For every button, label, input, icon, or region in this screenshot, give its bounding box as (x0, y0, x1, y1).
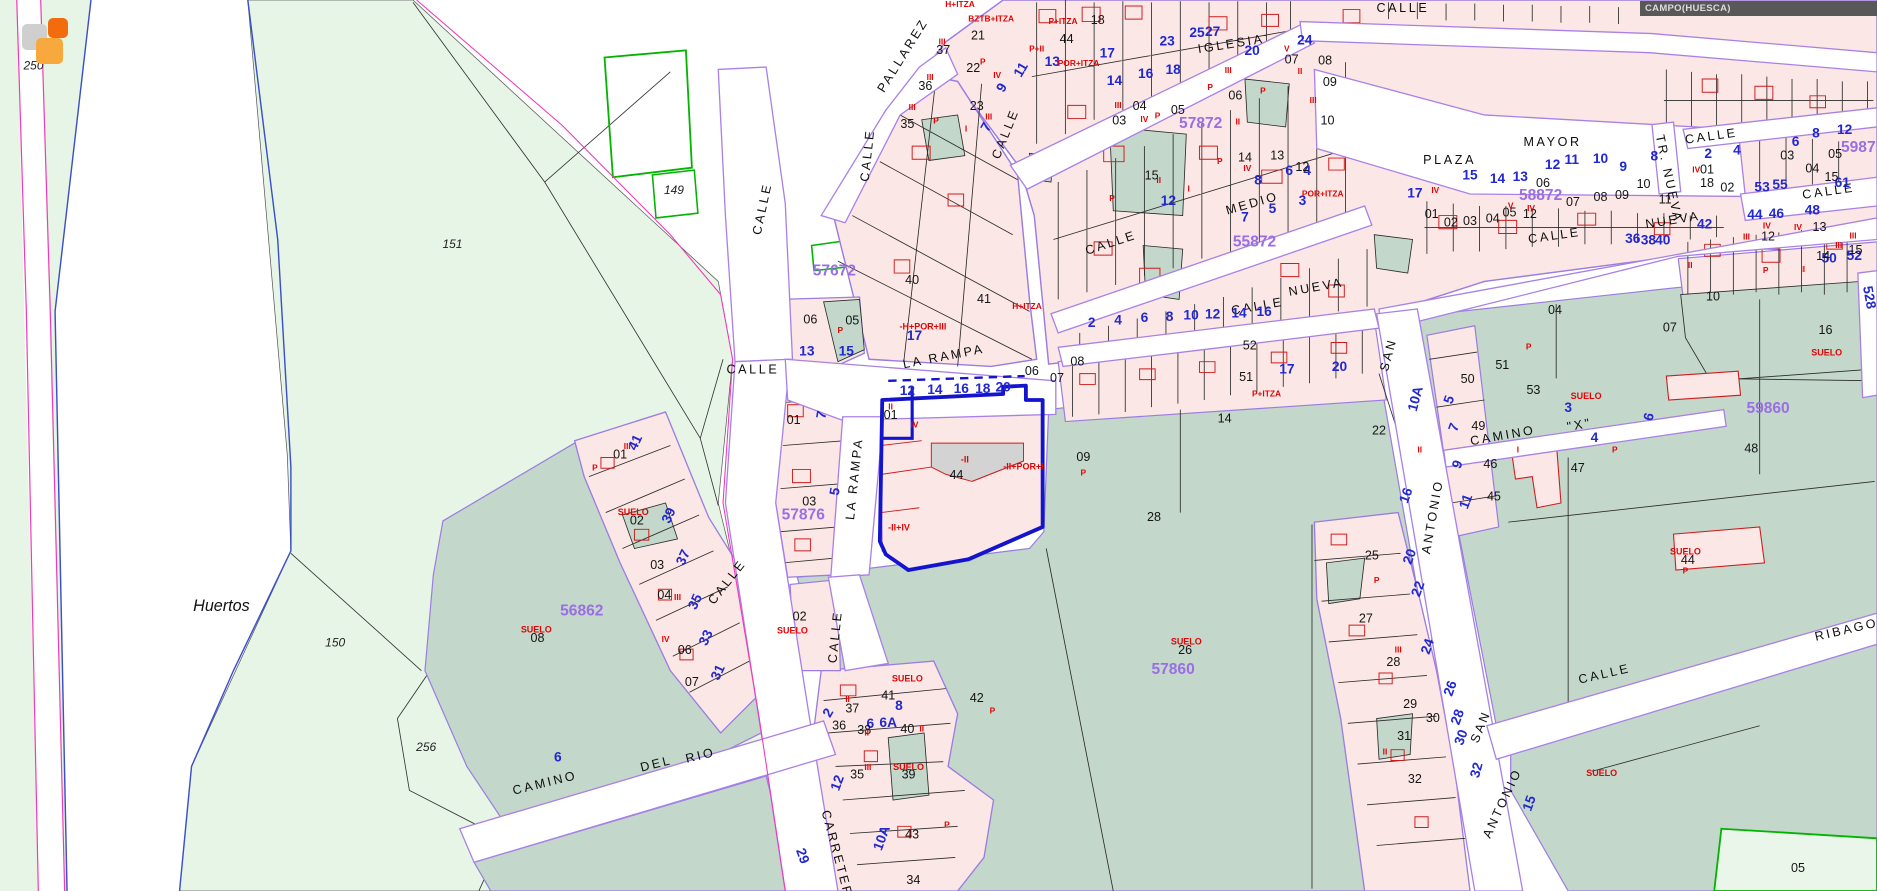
house-number-label: 18 (1165, 62, 1181, 77)
house-number-label: 4 (1114, 313, 1122, 328)
house-number-label: 6 (554, 750, 562, 765)
rural-parcel-label: 256 (415, 740, 436, 754)
parcel-number-label: 13 (1813, 220, 1827, 234)
parcel-number-label: 31 (1397, 729, 1411, 743)
house-number-label: 17 (1279, 362, 1295, 377)
construction-annotation: II (864, 727, 869, 737)
construction-annotation: P (838, 325, 844, 335)
construction-annotation: IV (1527, 203, 1535, 213)
house-number-label: 16 (1138, 66, 1154, 81)
house-number-label: 14 (927, 382, 943, 397)
block-number-label: 57860 (1152, 661, 1196, 678)
construction-annotation: SUELO (521, 624, 552, 634)
tile-orange-icon (48, 18, 68, 38)
parcel-number-label: 40 (900, 722, 914, 736)
house-number-label: 6A (879, 715, 897, 730)
house-number-label: 15 (839, 344, 855, 359)
parcel-number-label: 28 (1147, 510, 1161, 524)
construction-annotation: SUELO (777, 626, 808, 636)
construction-annotation: IV (1243, 163, 1251, 173)
parcel-number-label: 44 (1060, 32, 1074, 46)
parcel-number-label: 10 (1637, 177, 1651, 191)
region-label: CAMPO(HUESCA) (1645, 3, 1731, 14)
parcel-number-label: 03 (802, 494, 816, 508)
house-number-label: 55 (1772, 177, 1788, 192)
tile-amber-icon (36, 38, 63, 64)
construction-annotation: III (927, 72, 934, 82)
construction-annotation: P (1612, 445, 1618, 455)
construction-annotation: II (1298, 66, 1303, 76)
house-number-label: 8 (1254, 172, 1262, 187)
parcel-number-label: 07 (1663, 321, 1677, 335)
construction-annotation: II (919, 724, 924, 734)
parcel-number-label: 02 (1444, 215, 1458, 229)
street-name-label: CALLE (726, 363, 779, 377)
construction-annotation: P (980, 57, 986, 67)
construction-annotation: III (1743, 232, 1750, 242)
house-number-label: 12 (1161, 193, 1177, 208)
parcel-number-label: 45 (1487, 490, 1501, 504)
parcel-number-label: 34 (906, 873, 920, 887)
parcel-number-label: 01 (787, 413, 801, 427)
construction-annotation: V (1284, 43, 1290, 53)
parcel-number-label: 05 (845, 314, 859, 328)
construction-annotation: P (1763, 265, 1769, 275)
construction-annotation: II (1800, 264, 1805, 274)
house-number-label: 20 (1244, 43, 1260, 58)
parcel-number-label: 01 (1425, 207, 1439, 221)
construction-annotation: III (1225, 65, 1232, 75)
construction-annotation: SUELO (1670, 546, 1701, 556)
construction-annotation: P (990, 706, 996, 716)
house-number-label: 42 (1697, 217, 1713, 232)
house-number-label: 8 (1812, 126, 1820, 141)
construction-annotation: II (888, 402, 893, 412)
parcel-number-label: 49 (1471, 419, 1485, 433)
block-number-label: 59871 (1841, 139, 1877, 156)
parcel-number-label: 05 (1171, 103, 1185, 117)
parcel-number-label: 14 (1816, 249, 1830, 263)
parcel-number-label: 51 (1495, 358, 1509, 372)
construction-annotation: BZTB+ITZA (968, 14, 1014, 24)
house-number-label: 17 (1100, 45, 1116, 60)
construction-annotation: III (909, 102, 916, 112)
construction-annotation: P (1526, 342, 1532, 352)
block-number-label: 55872 (1233, 234, 1277, 251)
house-number-label: 20 (1332, 359, 1348, 374)
rural-parcel-label: 150 (325, 636, 345, 650)
parcel-number-label: 29 (1403, 697, 1417, 711)
rural-parcel-label: 149 (664, 183, 684, 197)
construction-annotation: -II+IV (888, 523, 910, 533)
parcel-number-label: 35 (900, 117, 914, 131)
construction-annotation: H+ITZA (1012, 301, 1042, 311)
street-name-label: PLAZA (1423, 153, 1476, 167)
construction-annotation: P (1155, 111, 1161, 121)
parcel-number-label: 43 (905, 827, 919, 841)
parcel-number-label: 06 (1228, 88, 1242, 102)
construction-annotation: IV (1140, 114, 1148, 124)
parcel-number-label: 12 (1761, 230, 1775, 244)
construction-annotation: SUELO (892, 673, 923, 683)
house-number-label: 23 (1159, 34, 1175, 49)
house-number-label: 24 (1297, 32, 1313, 47)
construction-annotation: II (1156, 175, 1161, 185)
parcel-number-label: 52 (1243, 339, 1257, 353)
house-number-label: 14 (1107, 73, 1123, 88)
house-number-label: 10 (1593, 151, 1609, 166)
house-number-label: 12 (1205, 307, 1221, 322)
construction-annotation: III (1115, 100, 1122, 110)
parcel-number-label: 08 (1070, 354, 1084, 368)
parcel-number-label: 07 (685, 675, 699, 689)
parcel-number-label: 04 (1805, 161, 1819, 175)
parcel-number-label: 08 (1318, 54, 1332, 68)
house-number-label: 8 (1166, 309, 1174, 324)
construction-annotation: P (933, 115, 939, 125)
parcel-number-label: 16 (1819, 323, 1833, 337)
construction-annotation: III (674, 592, 681, 602)
construction-annotation: II (845, 694, 850, 704)
house-number-label: 528 (1860, 285, 1877, 311)
area-name-label: Huertos (193, 597, 250, 615)
parcel-number-label: 14 (1218, 412, 1232, 426)
parcel-number-label: 53 (1526, 383, 1540, 397)
construction-annotation: II (1417, 445, 1422, 455)
house-number-label: 25 (1189, 25, 1205, 40)
house-number-label: 44 (1747, 207, 1763, 222)
house-number-label: 38 (1641, 232, 1657, 247)
house-number-label: 16 (954, 381, 970, 396)
block-number-label: 57872 (1179, 115, 1223, 132)
parcel-number-label: 15 (1848, 243, 1862, 257)
parcel-number-label: 41 (881, 688, 895, 702)
parcel-number-label: 44 (949, 468, 963, 482)
house-number-label: 7 (1241, 210, 1249, 225)
parcel-number-label: 35 (850, 767, 864, 781)
house-number-label: 2 (1704, 146, 1712, 161)
house-number-label: 27 (1205, 24, 1221, 39)
construction-annotation: II (1383, 746, 1388, 756)
house-number-label: 36 (1625, 231, 1641, 246)
parcel-number-label: 40 (905, 273, 919, 287)
street-name-label: MAYOR (1523, 135, 1581, 149)
house-number-label: 13 (799, 344, 815, 359)
construction-annotation: I (1188, 184, 1190, 194)
parcel-number-label: 42 (970, 691, 984, 705)
house-number-label: 18 (975, 381, 991, 396)
construction-annotation: II (1688, 260, 1693, 270)
parcel-number-label: 32 (1408, 772, 1422, 786)
construction-annotation: IV (1431, 185, 1439, 195)
construction-annotation: -II (961, 454, 969, 464)
parcel-number-label: 05 (1828, 147, 1842, 161)
parcel-number-label: 21 (971, 29, 985, 43)
parcel-number-label: 04 (1548, 303, 1562, 317)
parcel-number-label: 15 (1825, 170, 1839, 184)
construction-annotation: I (965, 124, 967, 134)
construction-annotation: SUELO (1811, 348, 1842, 358)
house-number-label: 15 (1462, 168, 1478, 183)
construction-annotation: III (985, 112, 992, 122)
construction-annotation: IV (993, 70, 1001, 80)
parcel-number-label: 25 (1365, 548, 1379, 562)
construction-annotation: P (1109, 193, 1115, 203)
house-number-label: 12 (900, 383, 916, 398)
construction-annotation: V (1508, 200, 1514, 210)
construction-annotation: III (1835, 240, 1842, 250)
house-number-label: 4 (1733, 142, 1741, 157)
construction-annotation: IV (1692, 164, 1700, 174)
construction-annotation: POR+ITZA (1302, 188, 1344, 198)
block-number-label: 57672 (813, 262, 857, 279)
parcel-number-label: 36 (832, 718, 846, 732)
green-parcel-outline (605, 50, 692, 177)
parcel-number-label: 04 (657, 588, 671, 602)
house-number-label: 2 (1088, 315, 1096, 330)
house-number-label: 17 (1407, 186, 1423, 201)
construction-annotation: III (624, 441, 631, 451)
parcel-number-label: 03 (1463, 214, 1477, 228)
parcel-number-label: 09 (1615, 188, 1629, 202)
house-number-label: 6 (1141, 310, 1149, 325)
house-number-label: 48 (1805, 202, 1821, 217)
region-indicator: CAMPO(HUESCA) (1640, 1, 1877, 16)
parcel-number-label: 18 (1700, 176, 1714, 190)
parcel-number-label: 03 (650, 558, 664, 572)
parcel-number-label: 07 (1566, 195, 1580, 209)
house-number-label: 6 (1285, 163, 1293, 178)
parcel-number-label: 18 (1091, 13, 1105, 27)
construction-annotation: SUELO (1586, 768, 1617, 778)
construction-annotation: H+ITZA (945, 0, 975, 9)
parcel-number-label: 30 (1426, 711, 1440, 725)
construction-annotation: P+ITZA (1252, 388, 1281, 398)
parcel-number-label: 04 (1133, 99, 1147, 113)
construction-annotation: III (1850, 230, 1857, 240)
parcel-number-label: 01 (1700, 163, 1714, 177)
street-name-label: CALLE (1376, 1, 1429, 15)
construction-annotation: II (1235, 117, 1240, 127)
construction-annotation: SUELO (893, 762, 924, 772)
house-number-label: 53 (1754, 180, 1770, 195)
construction-annotation: P (944, 820, 950, 830)
house-number-label: 5 (1269, 201, 1277, 216)
parcel-number-label: 03 (1112, 114, 1126, 128)
parcel-number-label: 22 (1372, 424, 1386, 438)
parcel-number-label: 09 (1323, 75, 1337, 89)
house-number-label: 14 (1231, 305, 1247, 320)
house-number-label: 12 (1837, 122, 1853, 137)
parcel-number-label: 05 (1791, 861, 1805, 875)
parcel-number-label: 02 (793, 609, 807, 623)
house-number-label: 4 (1591, 430, 1599, 445)
construction-annotation: IV (662, 634, 670, 644)
house-number-label: 40 (1655, 232, 1671, 247)
parcel-number-label: 50 (1461, 372, 1475, 386)
construction-annotation: SUELO (618, 507, 649, 517)
parcel-number-label: 07 (1050, 371, 1064, 385)
parcel-number-label: 46 (1483, 457, 1497, 471)
construction-annotation: III (1395, 645, 1402, 655)
map-canvas[interactable]: CALLECALLELA RAMPALA RAMPACALLECALLECALL… (0, 0, 1877, 891)
parcel-number-label: 09 (1076, 450, 1090, 464)
parcel-number-label: 10 (1706, 290, 1720, 304)
parcel-number-label: 10 (1321, 114, 1335, 128)
construction-annotation: P (1217, 156, 1223, 166)
construction-annotation: P (1207, 82, 1213, 92)
house-number-label: 16 (1256, 304, 1272, 319)
house-number-label: 14 (1490, 171, 1506, 186)
construction-annotation: P (1081, 467, 1087, 477)
parcel-number-label: 28 (1386, 655, 1400, 669)
parcel-number-label: 11 (1659, 193, 1672, 207)
block-number-label: 57876 (782, 507, 826, 524)
parcel-number-label: 06 (1536, 176, 1550, 190)
block-number-label: 59860 (1746, 400, 1790, 417)
parcel-number-label: 04 (1486, 212, 1500, 226)
construction-annotation: I (1517, 445, 1519, 455)
construction-annotation: -II+POR+I (1003, 461, 1043, 471)
parcel-number-label: 06 (678, 643, 692, 657)
construction-annotation: P (1683, 566, 1689, 576)
house-number-label: 20 (995, 380, 1011, 395)
construction-annotation: P (1260, 85, 1266, 95)
construction-annotation: SUELO (1171, 636, 1202, 646)
construction-annotation: P (1374, 575, 1380, 585)
house-number-label: 13 (1513, 169, 1529, 184)
parcel-number-label: 48 (1744, 442, 1758, 456)
construction-annotation: P+II (1029, 43, 1044, 53)
parcel-number-label: 41 (977, 292, 991, 306)
construction-annotation: III (864, 762, 871, 772)
construction-annotation: SUELO (1571, 391, 1602, 401)
construction-annotation: P (592, 463, 598, 473)
block-number-label: 56862 (560, 603, 604, 620)
construction-annotation: IV (1763, 221, 1771, 231)
construction-annotation: POR+ITZA (1058, 58, 1100, 68)
house-number-label: 11 (1564, 152, 1579, 167)
parcel-number-label: 06 (803, 312, 817, 326)
parcel-number-label: 51 (1239, 370, 1253, 384)
house-number-label: 9 (1619, 159, 1627, 174)
parcel-number-label: 23 (970, 99, 984, 113)
parcel-number-label: 08 (1593, 190, 1607, 204)
parcel-number-label: 47 (1571, 461, 1585, 475)
construction-annotation: III (1310, 95, 1317, 105)
house-number-label: 6 (1792, 134, 1800, 149)
house-number-label: 10 (1183, 308, 1199, 323)
cadastral-map[interactable]: CALLECALLELA RAMPALA RAMPACALLECALLECALL… (0, 0, 1877, 891)
house-number-label: 46 (1769, 206, 1785, 221)
construction-annotation: IV (911, 420, 919, 430)
parcel-number-label: 06 (1025, 364, 1039, 378)
parcel-number-label: 22 (966, 61, 980, 75)
rural-parcel-label: 151 (443, 237, 463, 251)
parcel-number-label: 07 (1285, 52, 1299, 66)
house-number-label: 8 (1651, 148, 1659, 163)
construction-annotation: III (939, 36, 946, 46)
parcel-number-label: 02 (1720, 181, 1734, 195)
construction-annotation: -H+POR+III (900, 321, 947, 331)
house-number-label: 12 (1545, 157, 1561, 172)
house-number-label: 3 (1564, 400, 1572, 415)
building-island (1666, 371, 1740, 400)
parcel-number-label: 13 (1270, 148, 1284, 162)
house-number-label: 8 (895, 698, 903, 713)
parcel-number-label: 03 (1780, 148, 1794, 162)
parcel-number-label: 12 (1295, 160, 1309, 174)
construction-annotation: IV (1794, 222, 1802, 232)
construction-annotation: P+ITZA (1048, 16, 1077, 26)
parcel-number-label: 27 (1359, 612, 1373, 626)
